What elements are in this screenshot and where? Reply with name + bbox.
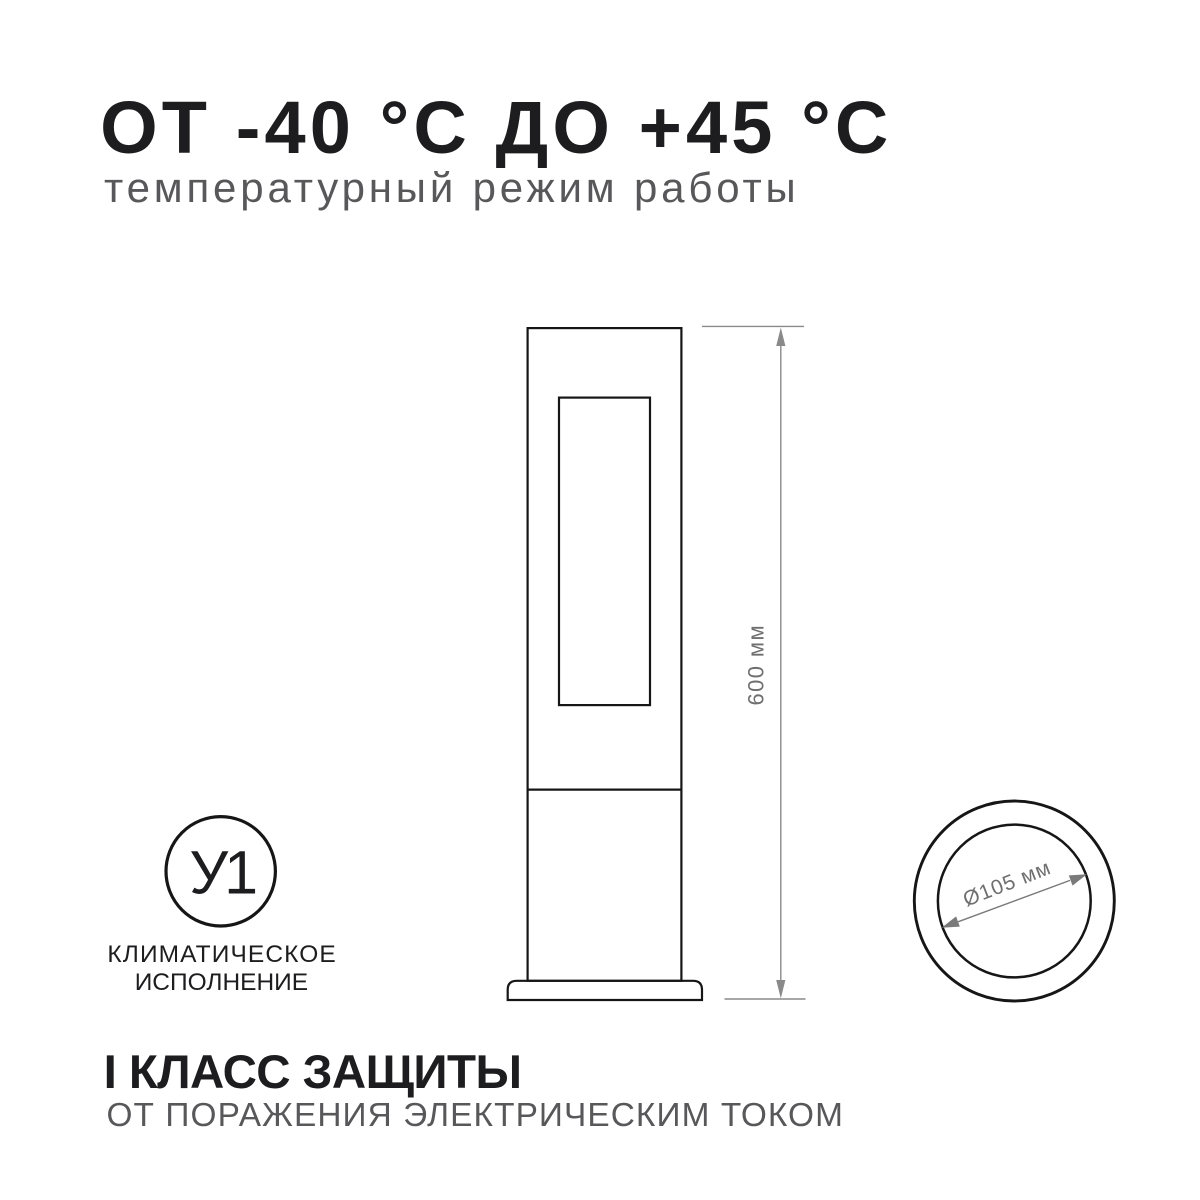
svg-text:У1: У1	[189, 839, 255, 907]
svg-text:600 мм: 600 мм	[744, 624, 769, 705]
